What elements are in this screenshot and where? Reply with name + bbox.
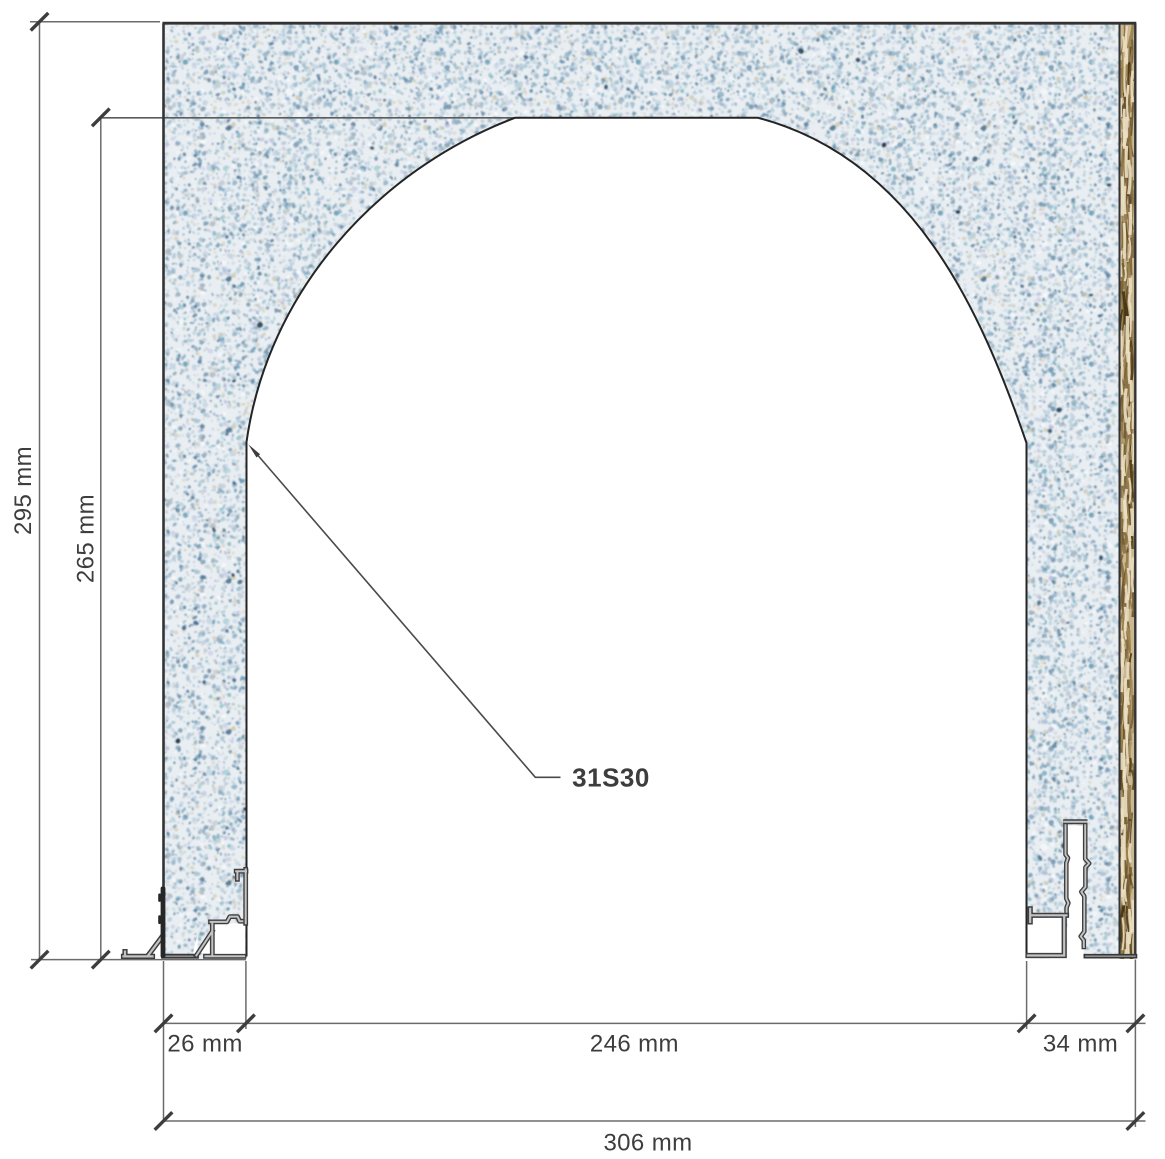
svg-text:26 mm: 26 mm [167,1030,242,1057]
svg-text:306 mm: 306 mm [603,1130,692,1157]
svg-text:265 mm: 265 mm [72,494,99,583]
svg-text:246 mm: 246 mm [590,1030,679,1057]
svg-text:31S30: 31S30 [572,763,650,793]
svg-text:295 mm: 295 mm [10,446,37,535]
svg-text:34 mm: 34 mm [1043,1030,1118,1057]
